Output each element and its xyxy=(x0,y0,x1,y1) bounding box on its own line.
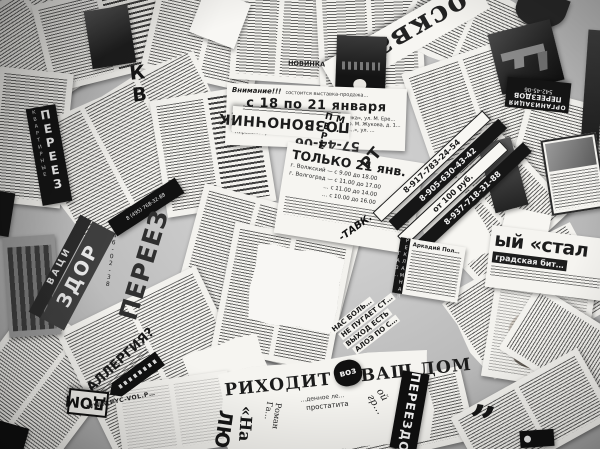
photo-fragment xyxy=(84,5,137,69)
na-vertical: «На xyxy=(235,405,257,448)
attention-label: Внимание!!! xyxy=(232,86,282,96)
typewriter-keys xyxy=(342,61,380,70)
typewriter-photo xyxy=(335,35,387,95)
ad-photo xyxy=(545,137,597,172)
dark-fragment xyxy=(0,191,15,237)
novinka-label: НОВИНКА xyxy=(288,59,332,69)
fine-print xyxy=(550,167,600,210)
newspaper-collage: осква в КВ НОВИНКА Внимание!!! состоится… xyxy=(0,0,600,449)
bigpereez-group: 8 (495) 768-32-88 ПЕРЕЕЗ 46-02-38 xyxy=(104,198,189,323)
framed-ad xyxy=(540,132,600,216)
quote-mark: ” xyxy=(465,399,516,449)
voz-text: воз xyxy=(338,366,357,380)
blank-scrap xyxy=(244,241,345,334)
dot-icon xyxy=(524,435,531,442)
dot-badge xyxy=(519,429,554,448)
bigpereez-phone2: 46-02-38 xyxy=(100,232,118,312)
